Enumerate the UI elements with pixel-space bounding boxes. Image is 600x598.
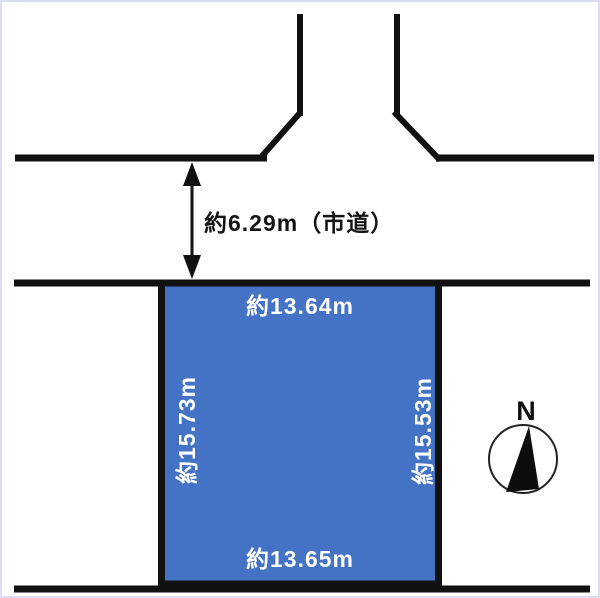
diagram-canvas: 約6.29m（市道） 約13.64m 約13.65m 約15.73m 約15.5… bbox=[2, 2, 600, 598]
plot-left-dimension-label: 約15.73m bbox=[174, 376, 200, 484]
compass-needle-icon bbox=[506, 426, 539, 492]
land-plot-diagram: 約6.29m（市道） 約13.64m 約13.65m 約15.73m 約15.5… bbox=[0, 0, 600, 598]
arrow-head-down-icon bbox=[183, 255, 201, 279]
plot-bottom-dimension-label: 約13.65m bbox=[246, 546, 354, 572]
arrow-head-up-icon bbox=[183, 162, 201, 186]
road-network bbox=[15, 14, 594, 158]
road-right-diagonal-line bbox=[396, 114, 438, 158]
road-width-label: 約6.29m（市道） bbox=[204, 210, 394, 236]
plot-right-dimension-label: 約15.53m bbox=[410, 377, 436, 485]
road-width-dimension-arrow bbox=[183, 162, 201, 279]
compass: N bbox=[489, 396, 557, 493]
compass-north-label: N bbox=[516, 396, 536, 426]
plot-top-dimension-label: 約13.64m bbox=[246, 293, 354, 319]
land-plot-rect bbox=[162, 283, 439, 584]
road-left-diagonal-line bbox=[263, 114, 299, 155]
